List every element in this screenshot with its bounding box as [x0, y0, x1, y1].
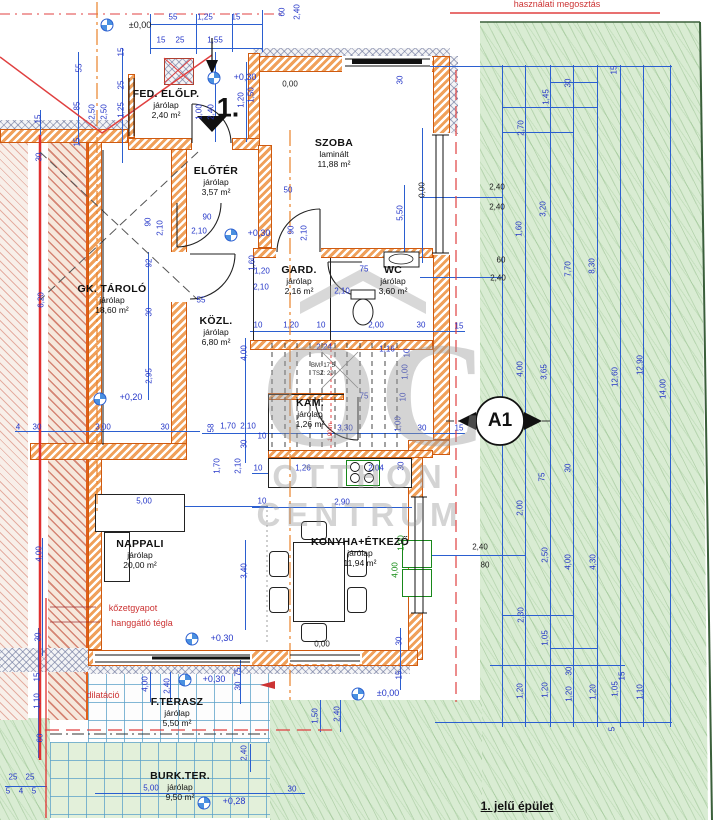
- room-name: GARD.: [269, 264, 329, 276]
- dim-label: 4,30: [589, 554, 598, 570]
- dim-line: [597, 65, 598, 727]
- stair-note-2: TSZ: 29: [312, 371, 333, 377]
- partition-line: [330, 258, 331, 340]
- room-szoba: SZOBA laminált 11,88 m²: [289, 137, 379, 169]
- dim-label: 10: [399, 393, 408, 402]
- dim-label: 2,40: [489, 203, 505, 212]
- room-name: FED. ELŐLP.: [121, 88, 211, 100]
- room-fed-elolp: FED. ELŐLP. járólap 2,40 m²: [121, 88, 211, 120]
- level-label: ±0,00: [129, 20, 151, 30]
- hatch-strip-top: [253, 48, 450, 56]
- dim-label: 30: [240, 440, 249, 449]
- wall-garage-bottom: [30, 443, 187, 460]
- dim-line: [502, 615, 573, 616]
- dim-label: 2,10: [156, 220, 165, 236]
- room-name: KAM.: [280, 397, 340, 409]
- dim-line: [320, 700, 321, 732]
- dim-label: 30: [34, 633, 43, 642]
- dim-label: 1,55: [207, 36, 223, 45]
- dim-label: 10: [254, 464, 263, 473]
- dim-label: 30: [395, 637, 404, 646]
- room-finish: járólap: [363, 276, 423, 286]
- dim-label: 4: [19, 787, 23, 796]
- room-name: WC: [363, 264, 423, 276]
- note-dilatation: dilatáció: [86, 690, 119, 700]
- dim-label: 2,70: [517, 120, 526, 136]
- room-area: 3,57 m²: [176, 187, 256, 197]
- room-finish: laminált: [289, 149, 379, 159]
- opening-konyha-s-window: [288, 651, 362, 664]
- dim-label: 55: [197, 296, 206, 305]
- dim-label: 30: [288, 785, 297, 794]
- dim-label: 2,10: [240, 422, 256, 431]
- dim-line: [525, 65, 526, 727]
- room-fterasz: F.TERASZ járólap 5,50 m²: [132, 696, 222, 728]
- dim-label: 1,50: [247, 87, 256, 103]
- dim-label: 1,20: [516, 683, 525, 699]
- dim-label: 2,24: [316, 343, 332, 352]
- dim-label: 25: [9, 773, 18, 782]
- room-area: 11,94 m²: [295, 558, 425, 568]
- hatch-strip-topleft: [0, 120, 128, 129]
- dim-label: 1,10: [636, 684, 645, 700]
- room-kozl: KÖZL. járólap 6,80 m²: [181, 315, 251, 347]
- partition-line: [268, 394, 269, 451]
- opening-szoba-door: [276, 248, 321, 258]
- dim-label: 2,90: [334, 498, 350, 507]
- dim-label: 2,10: [253, 283, 269, 292]
- dim-label: 1,00: [401, 364, 410, 380]
- dim-label: 14,00: [659, 379, 668, 399]
- room-name: SZOBA: [289, 137, 379, 149]
- dim-label: 1,20: [254, 267, 270, 276]
- dim-line: [643, 65, 644, 727]
- room-name: KÖZL.: [181, 315, 251, 327]
- level-marker-icon: [225, 229, 238, 242]
- room-gk-tarolo: GK. TÁROLÓ járólap 18,60 m²: [57, 283, 167, 315]
- room-finish: járólap: [181, 327, 251, 337]
- dim-label: 30: [35, 153, 44, 162]
- kitchen-counter: [268, 458, 412, 488]
- dim-label: 2,50: [541, 547, 550, 563]
- room-name: BURK.TER.: [135, 770, 225, 782]
- dim-label: 2,10: [234, 458, 243, 474]
- dim-label: 90: [144, 218, 153, 227]
- room-konyha: KONYHA+ÉTKEZŐ járólap 11,94 m²: [295, 536, 425, 568]
- level-label: +0,30: [211, 633, 234, 643]
- dim-label: 4: [16, 423, 20, 432]
- room-finish: járólap: [280, 409, 340, 419]
- dim-label: 1,60: [515, 221, 524, 237]
- level-marker-icon: [198, 797, 211, 810]
- dim-label: 30: [161, 423, 170, 432]
- dim-label: 15: [157, 36, 166, 45]
- dim-label: 0,00: [314, 640, 330, 649]
- watermark-line2: CENTRUM: [257, 496, 464, 534]
- section-marker-a1: A1: [488, 410, 512, 432]
- dim-label: 2,00: [516, 500, 525, 516]
- room-burkter: BURK.TER. járólap 9,50 m²: [135, 770, 225, 802]
- opening-top-window: [342, 56, 432, 72]
- dim-line: [435, 722, 672, 723]
- dim-label: 3,65: [540, 364, 549, 380]
- level-label: +0,30: [248, 228, 271, 238]
- dim-label: 2,40: [489, 183, 505, 192]
- dim-label: 15: [73, 138, 82, 147]
- wall-porch-bottom-left: [128, 138, 192, 150]
- dim-line: [620, 65, 621, 727]
- dim-label: 1,05: [611, 681, 620, 697]
- dim-label: 15: [34, 115, 43, 124]
- dim-label: 2,00: [368, 321, 384, 330]
- dim-label: 30: [564, 464, 573, 473]
- floor-plan-page: { "top_note": "használati megosztás", "b…: [0, 0, 723, 820]
- dim-label: 1,20: [283, 321, 299, 330]
- dim-label: 15: [232, 13, 241, 22]
- dim-label: 2,04: [368, 464, 384, 473]
- dim-label: 2,50: [100, 104, 109, 120]
- dim-label: 10: [317, 321, 326, 330]
- room-eloter: ELŐTÉR járólap 3,57 m²: [176, 165, 256, 197]
- dim-label: 85: [73, 102, 82, 111]
- dim-label: 12,60: [611, 367, 620, 387]
- opening-nappali-window: [93, 651, 252, 665]
- dim-label: 25: [176, 36, 185, 45]
- neighbour-wall-bottom-block: [0, 648, 88, 672]
- dim-line: [252, 507, 412, 508]
- hatch-strip-bottom: [88, 666, 410, 674]
- dim-line: [550, 82, 597, 83]
- room-area: 11,88 m²: [289, 159, 379, 169]
- level-label: +0,20: [120, 392, 143, 402]
- dim-label: 55: [169, 13, 178, 22]
- dim-line: [150, 48, 262, 49]
- level-marker-icon: [179, 674, 192, 687]
- dim-label: 4,00: [564, 554, 573, 570]
- dim-label: 30: [564, 79, 573, 88]
- dim-label: 92: [145, 259, 154, 268]
- dim-label: 5,00: [136, 497, 152, 506]
- level-label: ±0,00: [377, 688, 399, 698]
- dim-label: 1,70: [220, 422, 236, 431]
- level-marker-icon: [101, 19, 114, 32]
- partition-line: [268, 394, 344, 395]
- dim-label: 30: [396, 76, 405, 85]
- room-finish: járólap: [57, 295, 167, 305]
- room-nappali: NAPPALI járólap 20,00 m²: [95, 538, 185, 570]
- dim-label: 55: [75, 64, 84, 73]
- room-gard: GARD. járólap 2,16 m²: [269, 264, 329, 296]
- room-kam: KAM. járólap 1,26 m²: [280, 397, 340, 429]
- dim-label: 30: [33, 423, 42, 432]
- room-area: 9,50 m²: [135, 792, 225, 802]
- room-finish: járólap: [269, 276, 329, 286]
- dim-label: 10: [403, 349, 412, 358]
- dim-line: [5, 786, 47, 787]
- dim-line: [250, 744, 251, 772]
- dim-label: 10: [258, 497, 267, 506]
- opening-szoba-window: [433, 133, 452, 255]
- dim-label: 2,40: [490, 274, 506, 283]
- dim-label: 4,00: [240, 345, 249, 361]
- room-name: KONYHA+ÉTKEZŐ: [295, 536, 425, 548]
- stair-note-1: BM: 17,5: [311, 363, 335, 369]
- dim-label: 5: [608, 727, 617, 731]
- dim-label: 2,10: [334, 287, 350, 296]
- note-insulation: kőzetgyapot: [109, 603, 158, 613]
- wall-topleft: [0, 129, 128, 143]
- kitchen-cabinet: [402, 569, 432, 597]
- room-finish: járólap: [132, 708, 222, 718]
- note-top-division: használati megosztás: [514, 0, 601, 9]
- dim-label: 0,00: [282, 80, 298, 89]
- opening-garage-door: [171, 252, 187, 302]
- room-area: 2,40 m²: [121, 110, 211, 120]
- dim-label: 1,05: [541, 630, 550, 646]
- dim-line: [490, 665, 625, 666]
- level-marker-icon: [186, 633, 199, 646]
- dim-label: 2,10: [191, 227, 207, 236]
- note-brick: hanggátló tégla: [111, 618, 173, 628]
- dim-label: 2,95: [145, 368, 154, 384]
- porch-pillar: [164, 58, 194, 85]
- room-area: 6,80 m²: [181, 337, 251, 347]
- dim-label: 25: [26, 773, 35, 782]
- dim-label: 58: [207, 424, 216, 433]
- dim-label: 30: [418, 424, 427, 433]
- dim-label: 15: [117, 48, 126, 57]
- dim-label: 2,30: [517, 607, 526, 623]
- dim-label: 1,20: [237, 92, 246, 108]
- dim-label: 4,00: [516, 361, 525, 377]
- level-label: +0,30: [234, 72, 257, 82]
- dim-label: 60: [278, 8, 287, 17]
- room-area: 5,50 m²: [132, 718, 222, 728]
- dim-label: 10: [254, 321, 263, 330]
- room-name: ELŐTÉR: [176, 165, 256, 177]
- room-name: F.TERASZ: [132, 696, 222, 708]
- dim-line: [550, 65, 551, 727]
- dim-label: 1,70: [213, 458, 222, 474]
- room-area: 2,16 m²: [269, 286, 329, 296]
- room-finish: járólap: [295, 548, 425, 558]
- dim-label: 3,00: [95, 423, 111, 432]
- neighbour-wall-hatch-outer: [0, 135, 28, 720]
- neighbour-wall-hatch-inner: [48, 135, 88, 720]
- dim-line: [150, 24, 262, 25]
- dim-line: [573, 65, 574, 727]
- dim-label: 1,00: [394, 416, 403, 432]
- dim-label: 8,30: [588, 258, 597, 274]
- dim-label: 1,20: [541, 682, 550, 698]
- dim-label: 1,20: [589, 684, 598, 700]
- room-finish: járólap: [121, 100, 211, 110]
- room-wc: WC járólap 3,60 m²: [363, 264, 423, 296]
- dim-label: 4,00: [141, 676, 150, 692]
- dim-line: [250, 331, 465, 332]
- dim-label: 75: [360, 392, 369, 401]
- chair: [269, 551, 289, 577]
- dim-label: 15: [33, 673, 42, 682]
- garden-area-right: [480, 22, 708, 820]
- chair: [347, 587, 367, 613]
- dim-label: 7,70: [564, 261, 573, 277]
- dim-label: 15: [455, 424, 464, 433]
- room-area: 18,60 m²: [57, 305, 167, 315]
- dim-label: 75: [538, 473, 547, 482]
- dim-label: 1,25: [197, 13, 213, 22]
- dim-label: 3,20: [539, 201, 548, 217]
- room-finish: járólap: [135, 782, 225, 792]
- room-name: NAPPALI: [95, 538, 185, 550]
- room-finish: járólap: [176, 177, 256, 187]
- dim-label: 1,16: [379, 345, 395, 354]
- dim-label: 10: [258, 432, 267, 441]
- dim-label: 50: [284, 186, 293, 195]
- dim-label: 80: [481, 561, 490, 570]
- building-label: 1. jelű épület: [481, 799, 554, 813]
- chair: [269, 587, 289, 613]
- dim-label: 60: [497, 256, 506, 265]
- dim-label: 2,40: [293, 4, 302, 20]
- level-marker-icon: [208, 72, 221, 85]
- dim-label: 5,50: [396, 205, 405, 221]
- dim-line: [502, 65, 503, 727]
- dim-label: 15: [395, 671, 404, 680]
- garden-area-bottom: [270, 700, 482, 820]
- dim-label: 4,00: [35, 546, 44, 562]
- dim-label: 15: [455, 322, 464, 331]
- dim-label: 90: [203, 213, 212, 222]
- dim-label: 2,40: [333, 706, 342, 722]
- dim-label: 30: [417, 321, 426, 330]
- dim-line: [420, 197, 502, 198]
- dim-label: 1,26: [295, 464, 311, 473]
- level-marker-icon: [352, 688, 365, 701]
- dim-label: 1,45: [542, 89, 551, 105]
- dim-line: [502, 132, 573, 133]
- dim-label: 30: [234, 682, 243, 691]
- dim-line: [502, 107, 597, 108]
- room-area: 20,00 m²: [95, 560, 185, 570]
- dim-label: 2,10: [300, 225, 309, 241]
- dim-label: 0,00: [418, 182, 427, 198]
- wall-stair-south: [268, 450, 433, 458]
- dim-line: [430, 66, 672, 67]
- hatch-strip-right: [450, 56, 458, 134]
- dim-label: 2,40: [163, 678, 172, 694]
- dim-label: 2,40: [240, 745, 249, 761]
- dim-label: 6,20: [37, 292, 46, 308]
- dim-label: 15: [610, 66, 619, 75]
- dim-label: 75: [234, 668, 243, 677]
- room-name: GK. TÁROLÓ: [57, 283, 167, 295]
- level-marker-icon: [94, 393, 107, 406]
- dim-label: 90: [287, 226, 296, 235]
- dim-label: 2,50: [88, 104, 97, 120]
- dim-label: 5: [6, 787, 10, 796]
- dim-label: 1,50: [311, 708, 320, 724]
- dim-label: 12,90: [636, 355, 645, 375]
- dim-label: 30: [565, 667, 574, 676]
- dim-line: [550, 648, 597, 649]
- level-label: +0,30: [203, 674, 226, 684]
- dim-label: 3,40: [240, 563, 249, 579]
- dim-label: 1,10: [33, 693, 42, 709]
- dim-label: 15: [618, 672, 627, 681]
- dim-line: [262, 10, 263, 52]
- room-area: 1,26 m²: [280, 419, 340, 429]
- room-area: 3,60 m²: [363, 286, 423, 296]
- dim-label: 30: [397, 462, 406, 471]
- dim-label: 60: [36, 734, 45, 743]
- dim-label: 1,20: [565, 686, 574, 702]
- dim-label: 2,40: [472, 543, 488, 552]
- level-label: +0,28: [223, 796, 246, 806]
- dim-label: 5: [32, 787, 36, 796]
- dim-line: [670, 65, 671, 727]
- dim-line: [245, 540, 246, 630]
- room-finish: járólap: [95, 550, 185, 560]
